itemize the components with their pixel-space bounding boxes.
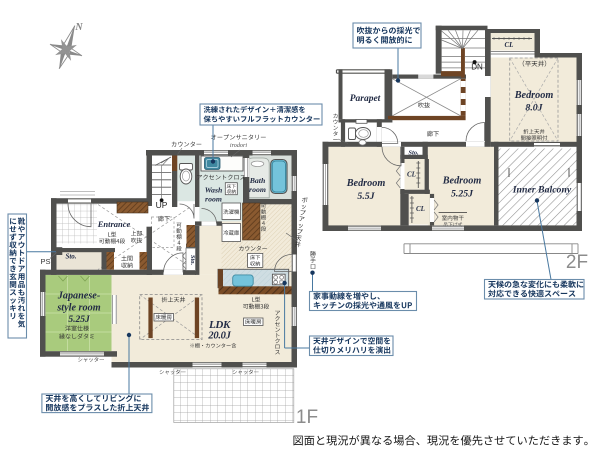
svg-text:N: N xyxy=(74,22,83,33)
svg-text:Bedroom: Bedroom xyxy=(514,90,554,101)
svg-text:Parapet: Parapet xyxy=(350,94,381,104)
svg-text:Sto.: Sto. xyxy=(65,253,76,261)
svg-text:CL: CL xyxy=(407,171,416,179)
svg-text:DN: DN xyxy=(471,63,483,72)
svg-text:LDK: LDK xyxy=(208,319,231,331)
svg-text:2F: 2F xyxy=(566,252,588,273)
svg-text:5.25J: 5.25J xyxy=(451,189,474,200)
svg-text:CL: CL xyxy=(505,41,514,49)
svg-text:Japanese-: Japanese- xyxy=(57,291,101,302)
svg-text:Bedroom: Bedroom xyxy=(442,176,482,187)
svg-text:Entrance: Entrance xyxy=(97,219,131,229)
svg-text:irodori: irodori xyxy=(230,142,248,149)
svg-text:PS: PS xyxy=(40,257,50,266)
svg-text:20.0J: 20.0J xyxy=(207,331,231,342)
svg-text:Wash: Wash xyxy=(205,186,223,195)
svg-text:5.25J: 5.25J xyxy=(68,315,90,325)
svg-text:Bath: Bath xyxy=(249,176,266,185)
svg-text:5.5J: 5.5J xyxy=(357,191,375,202)
svg-text:CL: CL xyxy=(416,205,425,213)
svg-text:8.0J: 8.0J xyxy=(525,103,543,114)
svg-text:room: room xyxy=(249,185,266,194)
svg-text:UP: UP xyxy=(156,200,168,210)
svg-text:1F: 1F xyxy=(296,407,318,428)
svg-text:Sto.: Sto. xyxy=(189,255,196,266)
svg-text:Sto.: Sto. xyxy=(408,150,419,157)
svg-text:Bedroom: Bedroom xyxy=(346,178,386,189)
svg-text:Inner Balcony: Inner Balcony xyxy=(512,185,572,196)
svg-text:room: room xyxy=(205,195,222,204)
svg-text:style room: style room xyxy=(56,303,100,314)
